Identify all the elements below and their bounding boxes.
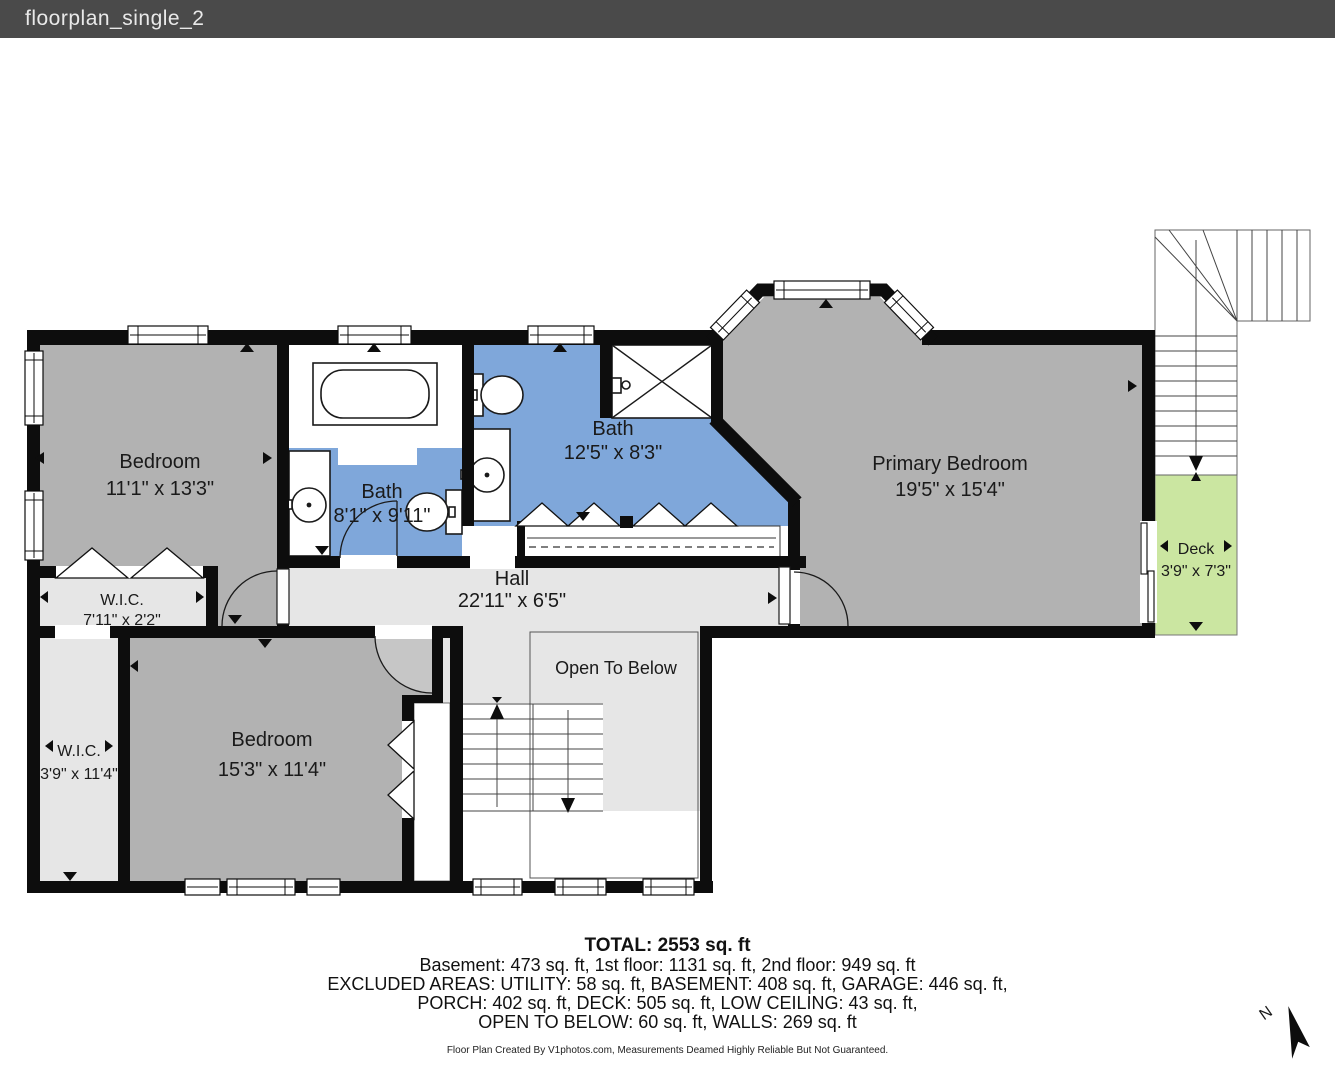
- disclaimer: Floor Plan Created By V1photos.com, Meas…: [0, 1045, 1335, 1056]
- sink: [283, 451, 330, 556]
- app-window: floorplan_single_2: [0, 0, 1335, 1080]
- room-dims: 8'1" x 9'11": [333, 505, 430, 527]
- window: [473, 879, 522, 895]
- window: [185, 879, 220, 895]
- closet-band: [523, 526, 780, 558]
- window: [555, 879, 606, 895]
- window: [338, 326, 411, 344]
- summary-line: EXCLUDED AREAS: UTILITY: 58 sq. ft, BASE…: [0, 975, 1335, 994]
- title-bar: floorplan_single_2: [0, 0, 1335, 38]
- room-label: Bedroom: [231, 729, 312, 751]
- room-dims: 15'3" x 11'4": [218, 759, 326, 781]
- window: [643, 879, 694, 895]
- summary-line: OPEN TO BELOW: 60 sq. ft, WALLS: 269 sq.…: [0, 1013, 1335, 1032]
- bedroom-2-closet: [414, 703, 450, 881]
- room-dims: 11'1" x 13'3": [106, 478, 214, 500]
- window: [227, 879, 295, 895]
- room-label: Deck: [1178, 541, 1215, 558]
- room-label: Primary Bedroom: [872, 453, 1028, 475]
- room-dims: 3'9" x 11'4": [40, 766, 118, 783]
- floor-plan: Bedroom 11'1" x 13'3" Bath 8'1" x 9'11" …: [0, 38, 1335, 1080]
- window: [774, 281, 870, 299]
- door-leaf: [277, 569, 289, 624]
- window: [25, 351, 43, 425]
- total-area: TOTAL: 2553 sq. ft: [0, 935, 1335, 956]
- deck-stairs: [1155, 230, 1310, 481]
- window: [25, 491, 43, 560]
- room-label: Bath: [361, 481, 402, 503]
- door-leaf: [779, 567, 790, 624]
- room-label: Hall: [495, 568, 529, 590]
- window: [307, 879, 340, 895]
- compass-north-arrow-icon: [1280, 1003, 1312, 1058]
- room-label: Bath: [592, 418, 633, 440]
- room-dims: 19'5" x 15'4": [895, 479, 1005, 501]
- room-label: Bedroom: [119, 451, 200, 473]
- window-title: floorplan_single_2: [0, 7, 204, 31]
- room-dims: 22'11" x 6'5": [458, 590, 566, 612]
- open-to-below-label: Open To Below: [555, 658, 678, 678]
- room-dims: 12'5" x 8'3": [564, 442, 663, 464]
- compass-north-label: N: [1257, 1003, 1276, 1024]
- stair-landing: [463, 811, 700, 881]
- compass: N: [1245, 993, 1335, 1078]
- room-dims: 3'9" x 7'3": [1161, 563, 1231, 580]
- room-label: W.I.C.: [100, 592, 144, 609]
- window: [128, 326, 208, 344]
- toilet: [468, 374, 523, 416]
- shower: [612, 345, 712, 418]
- summary-line: Basement: 473 sq. ft, 1st floor: 1131 sq…: [0, 956, 1335, 975]
- window: [528, 326, 594, 344]
- area-summary: TOTAL: 2553 sq. ft Basement: 473 sq. ft,…: [0, 935, 1335, 1056]
- room-label: W.I.C.: [57, 743, 101, 760]
- bath-2-vestibule: [468, 526, 517, 558]
- bathtub: [313, 363, 437, 425]
- summary-line: PORCH: 402 sq. ft, DECK: 505 sq. ft, LOW…: [0, 994, 1335, 1013]
- sliding-door: [1140, 521, 1157, 623]
